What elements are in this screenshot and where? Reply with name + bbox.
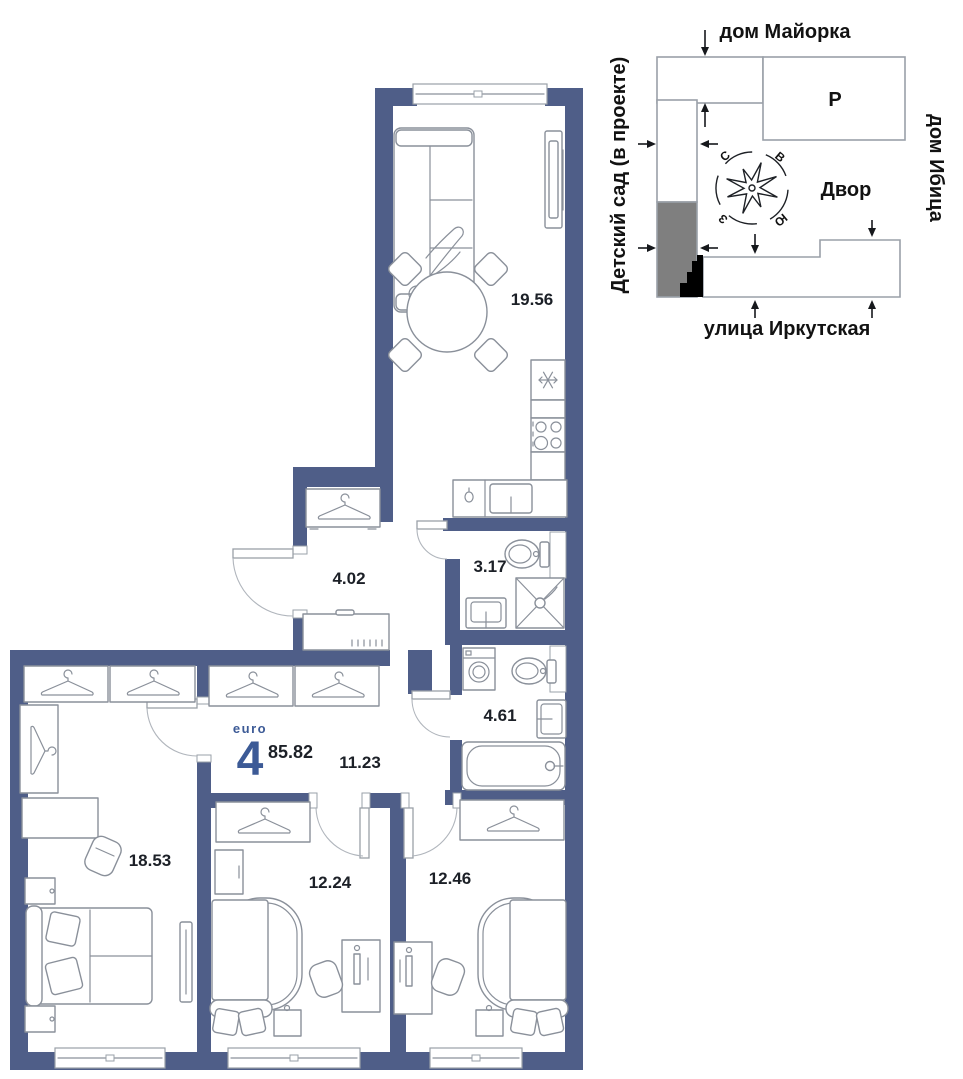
fridge [531,360,565,400]
arrow-left-out-2 [638,244,656,252]
br-nightstand [476,1006,503,1037]
site-building-bottom-strip [703,240,900,297]
arrow-bottom-up-1 [751,300,759,318]
window-living [413,84,547,104]
area-bedroom-middle: 12.24 [309,873,352,892]
area-living-kitchen: 19.56 [511,290,554,309]
apartment-type-badge: euro 4 85.82 [233,721,313,786]
arrow-top [701,30,709,56]
area-bathroom-small: 3.17 [473,557,506,576]
washing-machine [463,648,495,690]
arrow-left-out-1 [638,140,656,148]
compass-n: С [717,148,733,165]
shoe-cabinet [303,610,389,650]
shower [516,578,564,628]
type-number: 4 [237,733,264,786]
room-hallway: 4.02 [303,489,389,650]
sink-1 [466,598,506,628]
site-label-top: дом Майорка [720,21,852,43]
compass-s: Ю [772,211,790,230]
bl-bed [26,906,152,1006]
bathtub [462,742,565,790]
arrow-bottom-up-2 [868,300,876,318]
floorplan-canvas: 19.56 4.02 [0,0,963,1079]
area-corridor: 11.23 [339,753,381,772]
arrow-court-left-2 [700,244,718,252]
kitchen-counter-1 [531,400,565,418]
bm-wardrobe [216,802,310,842]
kitchen-sink-counter [453,480,567,517]
floorplan-page: 19.56 4.02 [0,0,963,1079]
entrance-door [233,546,307,618]
site-label-right: дом Ибица [925,114,947,223]
window-bedroom-left [55,1048,165,1068]
area-bedroom-right: 12.46 [429,869,472,888]
room-bedroom-middle: 12.24 [210,802,380,1036]
room-bedroom-right: 12.46 [394,800,568,1036]
site-label-courtyard: Двор [821,179,872,201]
arrow-court-left-1 [700,140,718,148]
room-bedroom-left: 18.53 [20,666,195,1032]
door-bathroom-large [412,691,450,737]
kitchen-counter-2 [531,452,565,480]
area-bedroom-left: 18.53 [129,851,172,870]
room-living-kitchen: 19.56 [387,128,567,517]
site-label-left: Детский сад (в проекте) [608,57,630,294]
site-label-bottom: улица Иркутская [704,318,871,340]
bm-nightstand [274,1006,301,1037]
area-bathroom-large: 4.61 [483,706,516,725]
corridor-wardrobe-1 [209,666,293,706]
room-corridor: euro 4 85.82 11.23 [209,666,381,786]
door-bathroom-small [417,521,447,559]
window-bedroom-right [430,1048,522,1068]
door-bedroom-left [147,697,211,762]
corridor-wardrobe-2 [295,666,379,706]
compass-rose: С В Ю З [709,145,794,230]
site-building-left-column [657,100,697,202]
room-bathroom-small: 3.17 [466,540,564,628]
area-hallway: 4.02 [332,569,365,588]
bl-nightstand-1 [25,878,55,904]
site-plan: С В Ю З дом Майорка Детский сад (в проек… [608,21,947,340]
sink-2 [537,700,566,738]
hall-wardrobe [306,489,380,529]
br-desk [394,942,467,1014]
bl-desk [22,798,124,879]
bl-nightstand-2 [25,1006,55,1032]
bm-dresser [215,850,243,894]
bl-wardrobe-2 [110,666,195,702]
arrow-court-down [751,234,759,254]
stove [531,418,565,452]
tv-bedroom-left [180,922,192,1002]
compass-e: В [772,149,788,166]
bm-desk [307,940,380,1012]
toilet-1 [505,540,549,568]
door-bedroom-middle [309,793,370,858]
room-bathroom-large: 4.61 [462,648,566,790]
compass-w: З [716,211,731,227]
site-building-top-strip [657,57,763,103]
arrow-right-down [868,220,876,237]
window-bedroom-middle [228,1048,360,1068]
bl-wardrobe-1 [24,666,108,702]
bl-wardrobe-tall [20,705,58,793]
arrow-court-up [701,103,709,127]
toilet-2 [512,658,556,684]
total-area: 85.82 [268,742,313,762]
site-label-parking: Р [828,89,841,111]
br-wardrobe [460,800,564,840]
tv-living [545,131,563,228]
vent-shaft-bath-small [550,532,566,578]
